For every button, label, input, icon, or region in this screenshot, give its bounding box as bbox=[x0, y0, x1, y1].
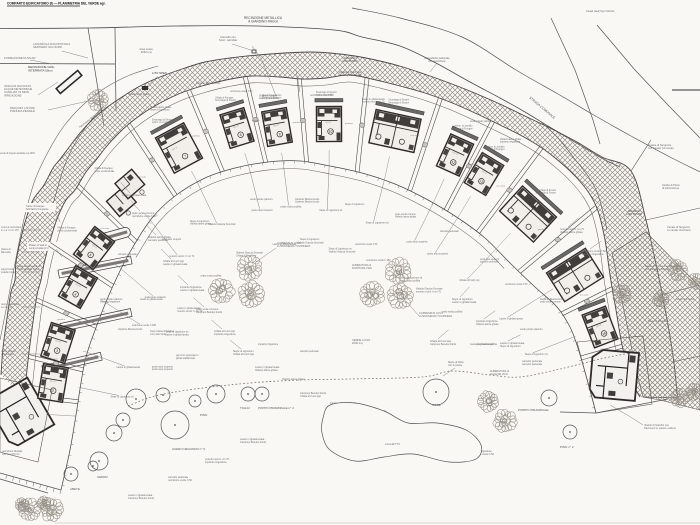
svg-text:posto auto scoperto: posto auto scoperto bbox=[427, 253, 449, 256]
svg-text:Lastre in ghiaia lavatamuretto: Lastre in ghiaia lavatamuretto recinz. c… bbox=[362, 98, 385, 104]
svg-text:Siepe di Fotinia: Siepe di Fotinia bbox=[648, 319, 666, 323]
svg-text:Lastre in ghiaia lavata: Lastre in ghiaia lavata bbox=[499, 317, 523, 320]
svg-text:verde privato piantum.: verde privato piantum. bbox=[250, 198, 273, 201]
svg-text:recinzione verde h 50: recinzione verde h 50 bbox=[355, 243, 378, 246]
svg-text:TIGLIO: TIGLIO bbox=[240, 406, 251, 410]
svg-text:ABETE: ABETE bbox=[70, 487, 80, 491]
svg-text:recinzione verde h 50: recinzione verde h 50 bbox=[505, 283, 528, 286]
svg-text:Vasca diRaccolta: Vasca diRaccolta bbox=[1, 248, 11, 254]
svg-text:p.to auto: p.to auto bbox=[410, 134, 419, 137]
svg-text:prato rustico polifita: prato rustico polifita bbox=[281, 205, 302, 208]
svg-text:Lastre in ghiaia lavataVialett: Lastre in ghiaia lavataVialetto lastre g… bbox=[255, 366, 280, 372]
svg-text:10: 10 bbox=[329, 130, 333, 134]
svg-text:Ghiaia di Fuori pspLastre ghia: Ghiaia di Fuori pspLastre ghiaia lavata bbox=[338, 70, 362, 77]
svg-text:NOCE: NOCE bbox=[432, 403, 441, 407]
svg-text:muretto recinz. h cm 70: muretto recinz. h cm 70 bbox=[169, 255, 195, 258]
svg-text:ACERO NEGUNDO n° 5: ACERO NEGUNDO n° 5 bbox=[172, 447, 205, 451]
svg-text:p.to auto: p.to auto bbox=[49, 357, 58, 360]
svg-text:prato verde comuneVialetto las: prato verde comuneVialetto lastre ghiaia bbox=[395, 213, 417, 219]
svg-text:ALBERATURA diFIORITURA VIALI: ALBERATURA diFIORITURA VIALI bbox=[352, 264, 372, 270]
svg-text:Smorzago di SmorziSmorzago di: Smorzago di SmorziSmorzago di Smorzi bbox=[535, 189, 556, 195]
svg-text:tipo B: tipo B bbox=[325, 121, 331, 124]
svg-text:recinzione verde h 180: recinzione verde h 180 bbox=[132, 324, 157, 327]
svg-text:siepe bordostrada mista: siepe bordostrada mista bbox=[1, 268, 15, 274]
svg-text:Siepe di Prunus: Siepe di Prunus bbox=[676, 297, 695, 301]
svg-text:p.to auto: p.to auto bbox=[137, 175, 146, 178]
svg-text:prato rustico polifita: prato rustico polifita bbox=[442, 311, 463, 314]
svg-text:Ghiaia di FuergesSmorzago di S: Ghiaia di FuergesSmorzago di Smorzi bbox=[215, 96, 236, 102]
svg-text:Siepe di LigustrumGhiaia di Fu: Siepe di LigustrumGhiaia di Fuori psp bbox=[233, 350, 255, 356]
svg-text:Ghiaia di Fuori psp: Ghiaia di Fuori psp bbox=[459, 279, 480, 282]
svg-text:LITO SPES: LITO SPES bbox=[152, 71, 167, 75]
svg-text:Ghiaia di Fuergesverde condomi: Ghiaia di Fuergesverde condominiale bbox=[94, 167, 115, 173]
svg-text:posto auto scoperto: posto auto scoperto bbox=[252, 209, 274, 212]
svg-text:Siepe di Ligustrum txt: Siepe di Ligustrum txt bbox=[319, 209, 342, 212]
svg-text:ALBERATURA diFiorita DE VIALI: ALBERATURA diFiorita DE VIALI bbox=[490, 370, 509, 376]
svg-text:Siepe di LigustrumVialetto las: Siepe di LigustrumVialetto lastre ghiaia bbox=[190, 220, 212, 226]
svg-text:Vialetto Giaccia Smorzatimuret: Vialetto Giaccia Smorzatimuretto recinz.… bbox=[416, 288, 443, 294]
svg-text:p.to auto: p.to auto bbox=[101, 227, 110, 230]
svg-text:ARMADIOCONTATORI: ARMADIOCONTATORI bbox=[626, 209, 642, 216]
svg-text:posto auto scopertoposto auto: posto auto scopertoposto auto scoperto bbox=[152, 365, 174, 371]
svg-text:impianto irrigazioneLastre in: impianto irrigazioneLastre in ghiaia lav… bbox=[180, 286, 205, 292]
svg-text:Carpinus Betulus bordo: Carpinus Betulus bordo bbox=[196, 82, 221, 85]
svg-text:Siepe di LigustrumSiepe di Lig: Siepe di LigustrumSiepe di Ligustrum bbox=[262, 94, 281, 100]
svg-text:recinz. su cordoloGhiaia di Fu: recinz. su cordoloGhiaia di Fuerges bbox=[454, 125, 473, 131]
svg-text:recinzione verde h 180: recinzione verde h 180 bbox=[366, 259, 391, 262]
svg-text:FORMAZIONE DUVILAR: FORMAZIONE DUVILAR bbox=[4, 56, 36, 60]
svg-text:giardino: giardino bbox=[57, 318, 66, 321]
svg-text:recinz. su cordoloGhiaia di Fu: recinz. su cordoloGhiaia di Fuerges bbox=[486, 145, 505, 151]
svg-text:Carpinus Betulus bordo: Carpinus Betulus bordo bbox=[118, 328, 143, 331]
svg-text:prato verde comunerecinzione v: prato verde comunerecinzione verde h 50 bbox=[132, 212, 157, 218]
svg-text:Siepe di Filivacon le piante: Siepe di Filivacon le piante bbox=[448, 361, 464, 367]
svg-text:verde privato piantum.impianto: verde privato piantum.impianto irrigazio… bbox=[100, 298, 123, 304]
svg-text:Canale di Tangenzasu canale Ve: Canale di Tangenzasu canale Vecchiano bbox=[667, 225, 691, 232]
svg-text:posto auto scoperto: posto auto scoperto bbox=[407, 240, 429, 243]
svg-text:Carpinus Betulus bordoCarpinus: Carpinus Betulus bordoCarpinus Betulus b… bbox=[295, 198, 320, 204]
svg-text:p.to auto: p.to auto bbox=[469, 163, 478, 166]
svg-text:Vialetto Giaccia Smorzati: Vialetto Giaccia Smorzati bbox=[209, 223, 236, 226]
svg-text:cancello pedonale: cancello pedonale bbox=[300, 351, 319, 353]
svg-text:Vialetto lastre ghiaiaSiepe di: Vialetto lastre ghiaiaSiepe di Ligustrum bbox=[150, 106, 172, 112]
svg-text:Siepe di Ligustrum txt: Siepe di Ligustrum txt bbox=[110, 395, 133, 398]
svg-text:PARQUET LISTONIPIANURA PENSILE: PARQUET LISTONIPIANURA PENSILE bbox=[10, 106, 35, 113]
svg-text:impianto irrigazione: impianto irrigazione bbox=[258, 343, 279, 346]
svg-text:ARMADIOCONTATORI: ARMADIOCONTATORI bbox=[342, 56, 358, 63]
svg-text:Casali Hua(?)pur Mondo: Casali Hua(?)pur Mondo bbox=[586, 9, 615, 13]
svg-text:verde privato piantum.: verde privato piantum. bbox=[470, 120, 493, 123]
svg-text:Vialetto lastre ghiaiaimpianto: Vialetto lastre ghiaiaimpianto irrigazio… bbox=[500, 138, 522, 144]
svg-text:muretto recinz. cm 70impianto: muretto recinz. cm 70impianto irrigazion… bbox=[205, 458, 230, 464]
svg-text:Siepe di Ligustrum: Siepe di Ligustrum bbox=[300, 238, 319, 241]
svg-text:RECINZIONE METALLICAA GIARDINO: RECINZIONE METALLICAA GIARDINO RAGGI bbox=[244, 16, 283, 24]
svg-text:Guaina di Tangenzacon Canale C: Guaina di Tangenzacon Canale Comunale bbox=[648, 143, 674, 150]
svg-text:giardino: giardino bbox=[601, 347, 610, 350]
svg-text:area sosta2150 mq: area sosta2150 mq bbox=[139, 47, 153, 54]
svg-text:giardino: giardino bbox=[345, 122, 354, 125]
svg-text:cancello pedonale: cancello pedonale bbox=[118, 254, 137, 256]
svg-text:Smorzago di SmorziSmorzago di: Smorzago di SmorziSmorzago di Smorzi bbox=[388, 99, 409, 105]
svg-text:PINO: PINO bbox=[200, 413, 208, 417]
svg-text:Siepe di Ligustrum txt: Siepe di Ligustrum txt bbox=[366, 221, 389, 224]
svg-text:Strada di Pianodi lottizzazion: Strada di Pianodi lottizzazione bbox=[662, 183, 680, 190]
svg-text:CEDRO: CEDRO bbox=[97, 475, 109, 479]
svg-text:p.to auto: p.to auto bbox=[497, 184, 506, 187]
svg-text:RECINZIONE GRIL.INTERRATA 50cm: RECINZIONE GRIL.INTERRATA 50cm bbox=[28, 65, 55, 72]
svg-text:Vialetto lastre ghiaia: Vialetto lastre ghiaia bbox=[128, 93, 150, 96]
svg-text:Lastre in ghiaia lavata: Lastre in ghiaia lavata bbox=[470, 343, 493, 346]
svg-text:posti auto scoperticancello pe: posti auto scoperticancello pedonale bbox=[480, 258, 499, 264]
svg-text:giardino: giardino bbox=[252, 119, 261, 122]
svg-text:giardino: giardino bbox=[192, 135, 201, 138]
svg-text:p.to auto: p.to auto bbox=[580, 293, 589, 296]
svg-text:Siepe di Ligustrum txt: Siepe di Ligustrum txt bbox=[525, 353, 548, 356]
svg-text:LAGHETTO: LAGHETTO bbox=[385, 442, 401, 446]
svg-text:Cancello conScorr. carrabile: Cancello conScorr. carrabile bbox=[219, 35, 238, 42]
svg-text:PIOPPO PIRAMIDALE: PIOPPO PIRAMIDALE bbox=[518, 408, 549, 412]
svg-text:Platani di Viali alcentro stra: Platani di Viali alcentro strada (cm) bbox=[29, 244, 49, 250]
svg-text:POPPO PIRAMIDALE n° 2: POPPO PIRAMIDALE n° 2 bbox=[258, 406, 294, 410]
svg-text:PINO n° 2: PINO n° 2 bbox=[560, 445, 574, 449]
svg-text:recinzione verde h 50: recinzione verde h 50 bbox=[230, 90, 253, 93]
svg-text:verde di rispetto stradale mq: verde di rispetto stradale mq 2400 bbox=[0, 152, 35, 155]
svg-text:prato rustico polifita: prato rustico polifita bbox=[201, 275, 222, 278]
svg-text:giardino: giardino bbox=[293, 121, 302, 124]
svg-text:Ghiaia di Fuori pspimpianto ir: Ghiaia di Fuori pspimpianto irrigazione bbox=[214, 330, 236, 336]
svg-text:Siepe sempreverde dibordo stra: Siepe sempreverde dibordo stradale mista bbox=[17, 265, 41, 271]
svg-text:verde privato piantum.: verde privato piantum. bbox=[520, 328, 543, 331]
svg-text:COMPARTO EDIFICATORIO 3b — PLA: COMPARTO EDIFICATORIO 3b — PLANIMETRIA D… bbox=[7, 2, 106, 6]
svg-text:Lastre in ghiaia lavataCarpinu: Lastre in ghiaia lavataCarpinus Betulus … bbox=[128, 494, 155, 500]
svg-text:Lastre in ghiaia lavataCarpinu: Lastre in ghiaia lavataCarpinus Betulus … bbox=[240, 438, 267, 444]
svg-text:recinzione verde h 50: recinzione verde h 50 bbox=[310, 94, 333, 97]
svg-text:cancello pedonale: cancello pedonale bbox=[440, 231, 459, 233]
svg-text:Lastre in ghiaia lavata: Lastre in ghiaia lavata bbox=[117, 366, 141, 369]
svg-text:Ghiaia di Fuergesverde condomi: Ghiaia di Fuergesverde condominiale bbox=[57, 227, 78, 233]
svg-text:impianto irrigazioneVialetto l: impianto irrigazioneVialetto lastre ghia… bbox=[476, 320, 499, 326]
svg-text:giardino: giardino bbox=[82, 264, 91, 267]
svg-text:Lastre in ghiaia lavata: Lastre in ghiaia lavata bbox=[140, 298, 163, 301]
svg-text:Siepe di Ligustrum: Siepe di Ligustrum bbox=[345, 203, 364, 206]
svg-text:Smorzago di Smorzirecinz. su c: Smorzago di Smorzirecinz. su cordolo bbox=[152, 119, 173, 125]
svg-text:recinzione verde h 50impianto: recinzione verde h 50impianto irrigazion… bbox=[582, 250, 607, 256]
svg-text:giardino: giardino bbox=[538, 228, 547, 231]
svg-text:cancello pedonalecancello pedo: cancello pedonalecancello pedonale bbox=[522, 360, 543, 366]
svg-text:muretto recinz. cm 70Vialetto: muretto recinz. cm 70Vialetto lastre ghi… bbox=[560, 228, 585, 234]
svg-text:Vialetto lastre ghiaiacancello: Vialetto lastre ghiaiacancello pedonale bbox=[148, 236, 171, 242]
svg-text:Lastre in ghiaia lavata: Lastre in ghiaia lavata bbox=[122, 194, 147, 197]
